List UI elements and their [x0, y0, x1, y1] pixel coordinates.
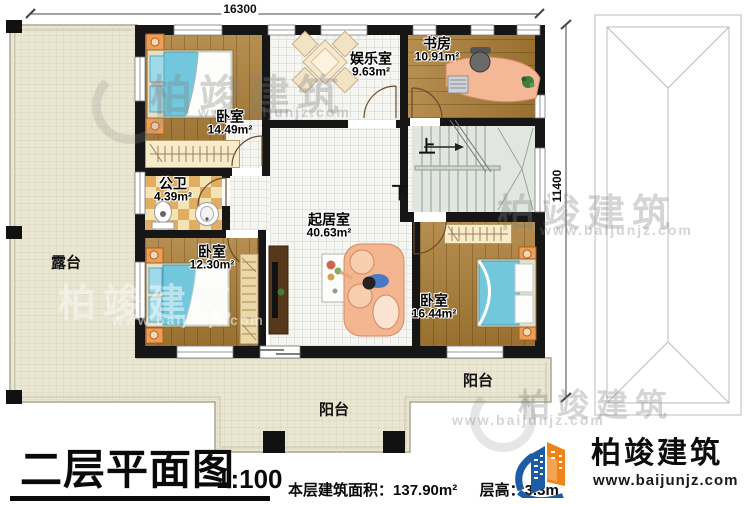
wardrobe-sw — [240, 254, 258, 344]
area-value: 137.90m² — [393, 482, 457, 499]
floor-plan-canvas: 柏竣建筑 www.baijunjz.com 柏竣建筑 www.baijunjz.… — [0, 0, 750, 505]
label-living: 起居室 40.63m² — [307, 213, 352, 240]
label-stairs-down: 下 — [392, 179, 409, 204]
label-terrace: 露台 — [51, 252, 81, 273]
living-furniture — [269, 244, 404, 336]
label-bedroom-nw: 卧室 14.49m² — [208, 110, 253, 137]
brand-company: 柏竣建筑 — [591, 438, 723, 470]
study-desk — [446, 47, 540, 102]
room-name: 卧室 — [208, 110, 253, 124]
brand-logo-icon — [513, 432, 585, 498]
label-entertainment: 娱乐室 9.63m² — [350, 52, 392, 79]
label-stairs-up: 上 — [419, 133, 436, 158]
watermark-swoosh-left — [92, 68, 168, 144]
label-bedroom-se: 卧室 16.44m² — [412, 294, 457, 321]
area-label: 本层建筑面积： — [288, 482, 393, 499]
dimension-width: 16300 — [221, 2, 258, 16]
brand-block: 柏竣建筑 www.baijunjz.com — [513, 432, 748, 502]
label-balcony-center: 阳台 — [319, 399, 349, 420]
bathroom-fixtures — [152, 202, 219, 230]
label-balcony-right: 阳台 — [463, 370, 493, 391]
table-entertainment — [292, 31, 357, 92]
page-title: 二层平面图 — [20, 448, 235, 492]
label-bathroom: 公卫 4.39m² — [154, 177, 192, 204]
room-area: 14.49m² — [208, 124, 253, 137]
plan-scale: 1:100 — [216, 464, 283, 495]
label-study: 书房 10.91m² — [415, 37, 460, 64]
label-bedroom-sw: 卧室 12.30m² — [190, 245, 235, 272]
sliding-door — [260, 346, 300, 358]
title-underline — [10, 496, 270, 501]
dimension-height: 11400 — [550, 168, 564, 205]
bed-se — [477, 247, 536, 340]
brand-website[interactable]: www.baijunjz.com — [593, 472, 738, 489]
